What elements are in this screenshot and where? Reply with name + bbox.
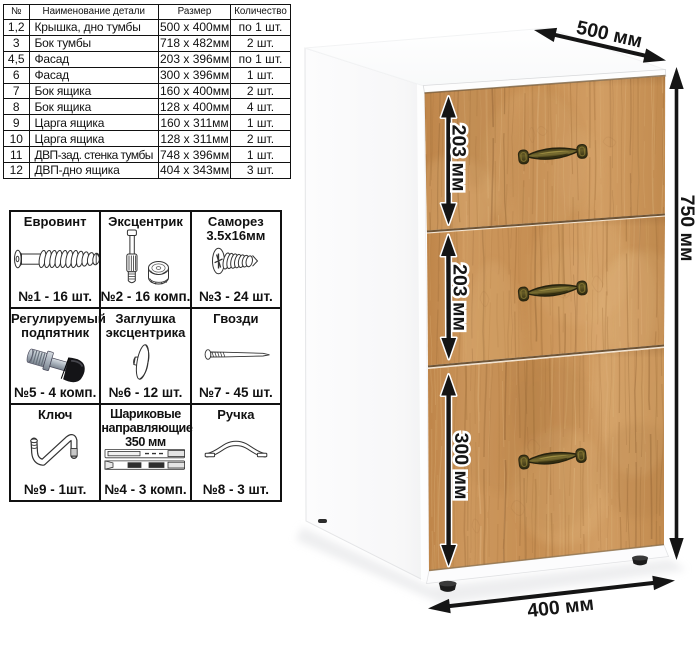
svg-text:750 мм: 750 мм	[676, 195, 698, 262]
svg-text:203 мм: 203 мм	[448, 125, 470, 192]
svg-text:203 мм: 203 мм	[449, 264, 471, 331]
svg-text:300 мм: 300 мм	[450, 433, 472, 500]
